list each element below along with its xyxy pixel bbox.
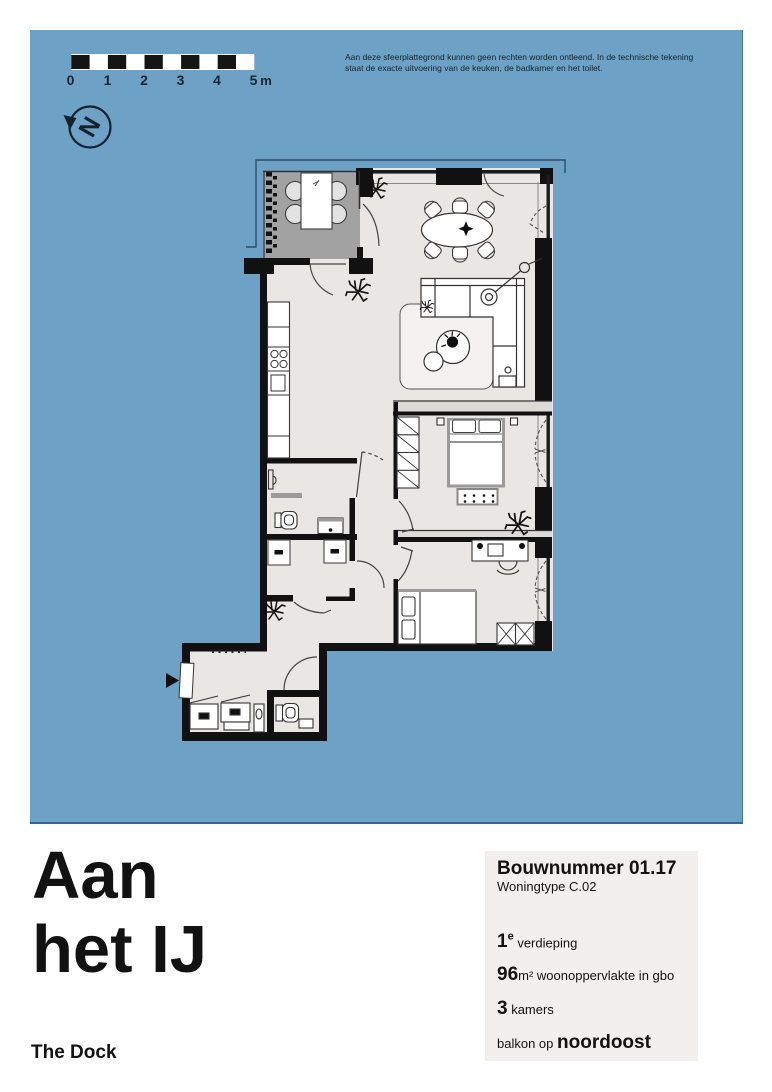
svg-text:0: 0 (67, 72, 75, 88)
svg-text:1: 1 (104, 72, 112, 88)
svg-text:2: 2 (140, 72, 148, 88)
svg-text:4: 4 (213, 72, 221, 88)
svg-text:N: N (73, 112, 106, 142)
svg-text:5: 5 (250, 72, 258, 88)
svg-text:3: 3 (177, 72, 185, 88)
svg-text:m: m (260, 73, 272, 88)
